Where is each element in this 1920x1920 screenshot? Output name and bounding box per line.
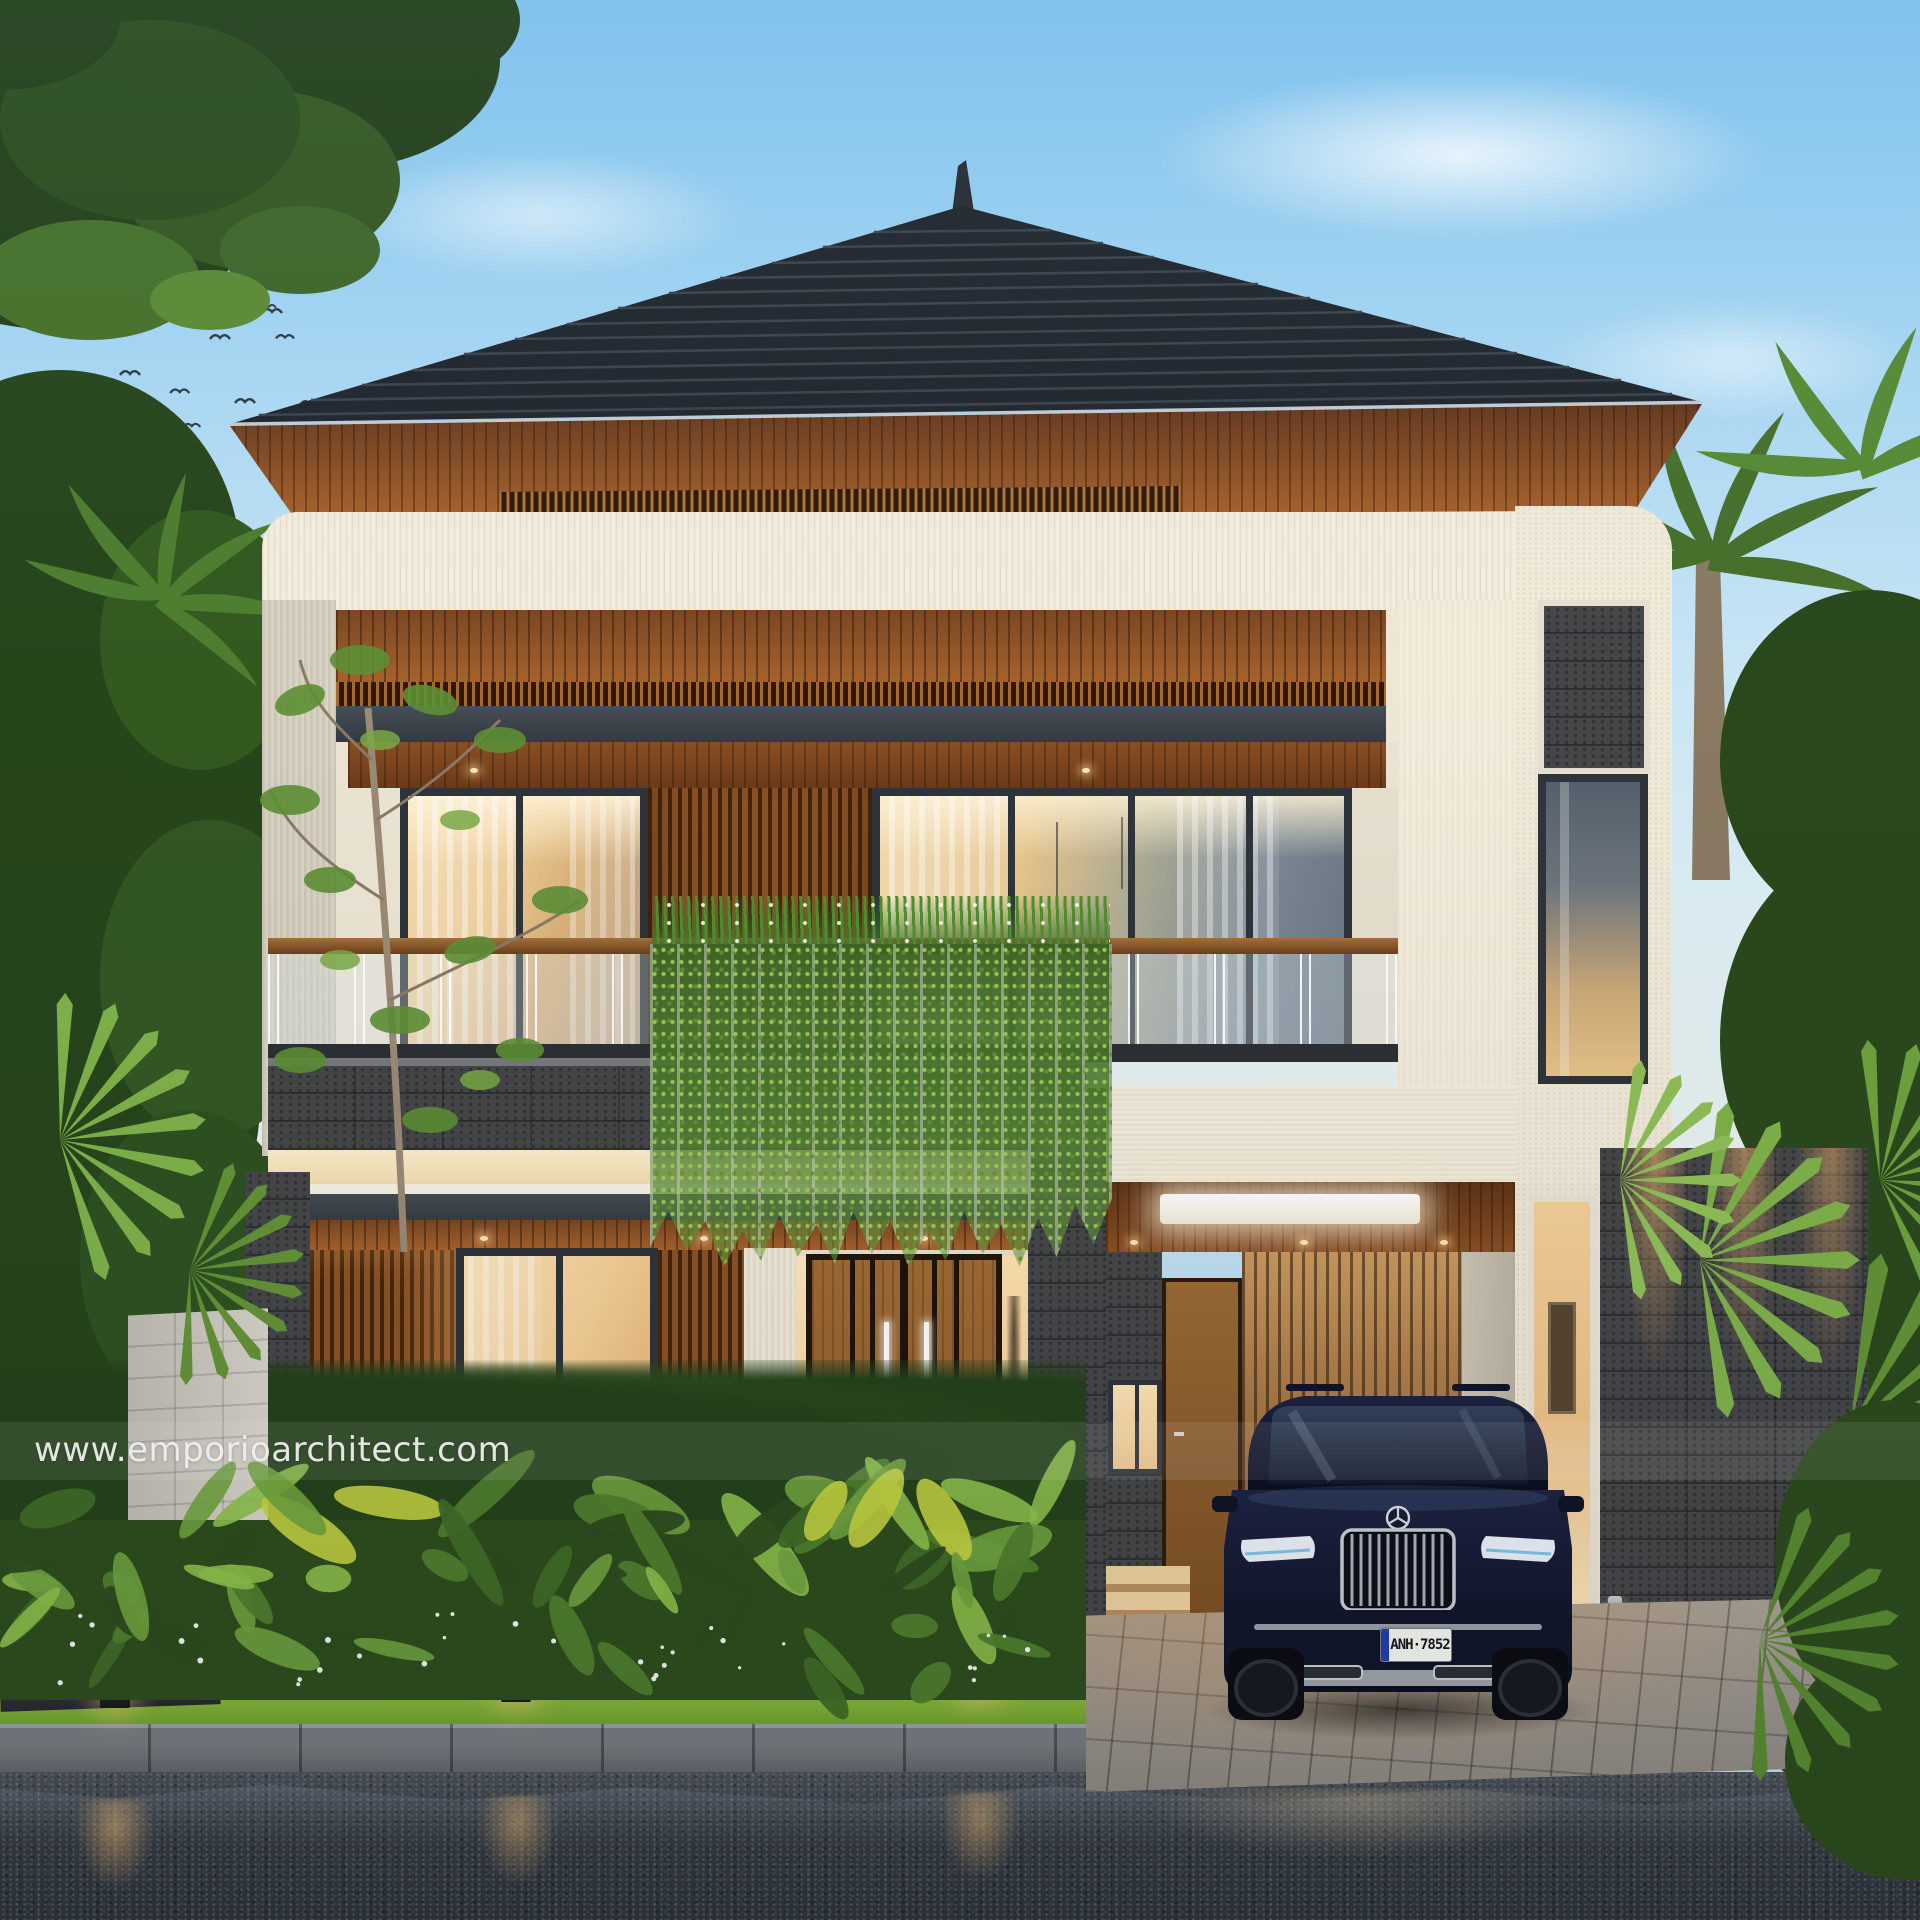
rendered-scene: ANH·7852 [0, 0, 1920, 1920]
light-reflection [940, 1792, 1020, 1882]
tree-canopy [0, 0, 520, 340]
light-reflection [478, 1796, 558, 1886]
watermark-text: www.emporioarchitect.com [34, 1430, 511, 1470]
foreground-vegetation [0, 0, 1920, 1920]
light-reflection [1150, 1790, 1570, 1860]
front-tree [260, 645, 588, 1252]
fan-palm [32, 975, 327, 1406]
light-reflection [75, 1800, 155, 1890]
